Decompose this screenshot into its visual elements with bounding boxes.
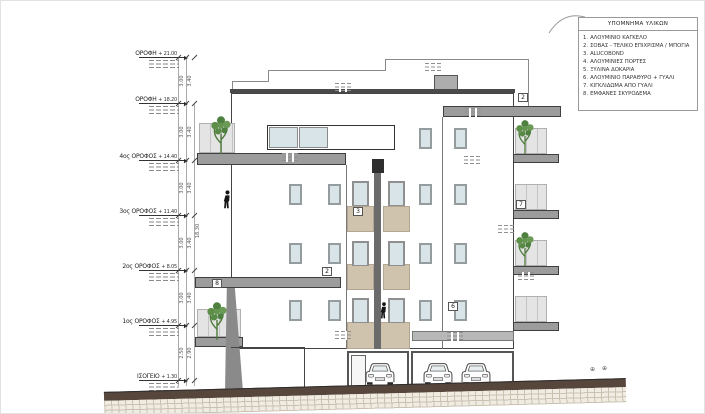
window xyxy=(454,128,467,149)
dim-line xyxy=(186,58,187,386)
callout-8: 8 xyxy=(212,279,222,288)
window xyxy=(289,300,302,321)
dim-value: 3.40 xyxy=(187,287,193,309)
balcony-slab xyxy=(513,322,559,331)
callout-6: 6 xyxy=(448,302,458,311)
level-line xyxy=(139,160,187,161)
dim-value: 3.00 xyxy=(179,232,185,254)
soffit-line xyxy=(231,347,304,348)
legend-item: 3.ALUCOBOND xyxy=(583,50,693,58)
level-line xyxy=(139,103,187,104)
canopy-band xyxy=(412,331,514,341)
parapet-line xyxy=(385,59,386,71)
wall-joint xyxy=(442,117,443,349)
person-figure xyxy=(223,190,232,209)
ground xyxy=(104,364,627,414)
balcony-door xyxy=(352,241,369,266)
plant xyxy=(512,119,538,155)
window xyxy=(328,300,341,321)
legend-item: 4.ΑΛΟΥΜΙΝΙΕΣ ΠΟΡΤΕΣ xyxy=(583,58,693,66)
window xyxy=(419,128,432,149)
parapet-line xyxy=(528,59,529,107)
person-figure xyxy=(380,302,388,319)
survey-marker-icon: ⊕ xyxy=(590,366,595,373)
dim-value-overall: 18.30 xyxy=(195,220,201,242)
plaster-texture-mark xyxy=(425,63,441,72)
legend-item: 6.ΑΛΟΥΜΙΝΙΟ ΠΑΡΑΘΥΡΟ + ΓΥΑΛΙ xyxy=(583,74,693,82)
window xyxy=(419,243,432,264)
plaster-texture-mark xyxy=(335,331,351,340)
plant xyxy=(512,231,538,267)
legend-item: 8.ΕΜΦΑΝΕΣ ΣΚΥΡΟΔΕΜΑ xyxy=(583,90,693,98)
parapet-line xyxy=(268,70,269,82)
window xyxy=(419,300,432,321)
plaster-texture-mark xyxy=(447,332,463,341)
balcony-door xyxy=(388,298,405,323)
level-line xyxy=(139,215,187,216)
dim-value: 2.90 xyxy=(187,342,193,364)
materials-legend: ΥΠΟΜΝΗΜΑ ΥΛΙΚΩΝ 1.ΑΛΟΥΜΙΝΙΟ ΚΑΓΚΕΛΟ 2.ΣΟ… xyxy=(578,17,698,111)
level-hatch xyxy=(149,273,179,281)
balcony-door xyxy=(388,241,405,266)
window xyxy=(269,127,298,148)
window xyxy=(299,127,328,148)
glass-railing xyxy=(515,296,547,322)
level-hatch xyxy=(149,60,179,68)
plaster-texture-mark xyxy=(518,272,534,281)
legend-item: 5.ΞΥΛΙΝΑ ΔΟΚΑΡΙΑ xyxy=(583,66,693,74)
legend-item: 7.ΚΙΓΚΛΙΔΩΜΑ ΑΠΟ ΓΥΑΛΙ xyxy=(583,82,693,90)
roof-slab xyxy=(230,89,515,93)
window xyxy=(454,243,467,264)
callout-7: 7 xyxy=(516,200,526,209)
alucobond-panel xyxy=(347,264,374,290)
dim-value: 2.50 xyxy=(179,342,185,364)
balcony-slab xyxy=(513,210,559,219)
level-hatch xyxy=(149,328,179,336)
survey-marker-icon: ⊕ xyxy=(602,365,607,372)
alucobond-panel xyxy=(383,206,410,232)
balcony-door xyxy=(352,298,369,323)
dim-value: 3.40 xyxy=(187,232,193,254)
balcony-door xyxy=(388,181,405,206)
callout-2b: 2 xyxy=(322,267,332,276)
dim-value: 3.00 xyxy=(179,121,185,143)
callout-2: 2 xyxy=(518,93,528,102)
window xyxy=(328,184,341,205)
dim-value: 3.00 xyxy=(179,287,185,309)
parapet-line xyxy=(269,70,386,71)
window xyxy=(289,243,302,264)
dim-value: 3.40 xyxy=(187,121,193,143)
parapet-line xyxy=(386,59,529,60)
core-cap xyxy=(372,159,384,173)
canopy-slab xyxy=(443,106,561,117)
plant xyxy=(202,301,232,341)
level-line xyxy=(139,270,187,271)
plaster-texture-mark xyxy=(464,156,480,165)
level-label: 1ος ΟΡΟΦΟΣ + 4.95 xyxy=(122,318,177,325)
level-label: 4ος ΟΡΟΦΟΣ + 14.40 xyxy=(119,153,177,160)
balcony-slab xyxy=(513,154,559,163)
level-label: 3ος ΟΡΟΦΟΣ + 11.40 xyxy=(119,208,177,215)
parapet-line xyxy=(233,81,269,82)
legend-item: 1.ΑΛΟΥΜΙΝΙΟ ΚΑΓΚΕΛΟ xyxy=(583,34,693,42)
dim-value: 3.00 xyxy=(179,177,185,199)
dim-value: 3.40 xyxy=(187,70,193,92)
legend-title: ΥΠΟΜΝΗΜΑ ΥΛΙΚΩΝ xyxy=(579,18,697,31)
level-hatch xyxy=(149,163,179,171)
elevation-drawing: ΟΡΟΦΗ + 21.00 ΟΡΟΦΗ + 18.20 4ος ΟΡΟΦΟΣ +… xyxy=(0,0,705,414)
plaster-texture-mark xyxy=(465,108,481,117)
level-hatch xyxy=(149,106,179,114)
level-label: ΟΡΟΦΗ + 21.00 xyxy=(135,50,177,57)
dim-value: 3.00 xyxy=(179,70,185,92)
level-label: 2ος ΟΡΟΦΟΣ + 8.05 xyxy=(122,263,177,270)
plaster-texture-mark xyxy=(282,153,298,162)
level-label: ΟΡΟΦΗ + 18.20 xyxy=(135,96,177,103)
window xyxy=(454,184,467,205)
callout-3: 3 xyxy=(353,207,363,216)
tick-icon xyxy=(192,55,198,61)
legend-item: 2.ΣΟΒΑΣ - ΤΕΛΙΚΟ ΕΠΙΧΡΙΣΜΑ / ΜΠΟΓΙΑ xyxy=(583,42,693,50)
level-line xyxy=(139,57,187,58)
dim-value: 3.40 xyxy=(187,177,193,199)
window xyxy=(419,184,432,205)
plant xyxy=(206,115,236,155)
level-hatch xyxy=(149,218,179,226)
balcony-door xyxy=(352,181,369,206)
window xyxy=(289,184,302,205)
window xyxy=(328,243,341,264)
alucobond-panel xyxy=(383,264,410,290)
plaster-texture-mark xyxy=(335,83,351,92)
level-line xyxy=(139,325,187,326)
legend-list: 1.ΑΛΟΥΜΙΝΙΟ ΚΑΓΚΕΛΟ 2.ΣΟΒΑΣ - ΤΕΛΙΚΟ ΕΠΙ… xyxy=(579,31,697,101)
core-shaft xyxy=(374,173,381,349)
